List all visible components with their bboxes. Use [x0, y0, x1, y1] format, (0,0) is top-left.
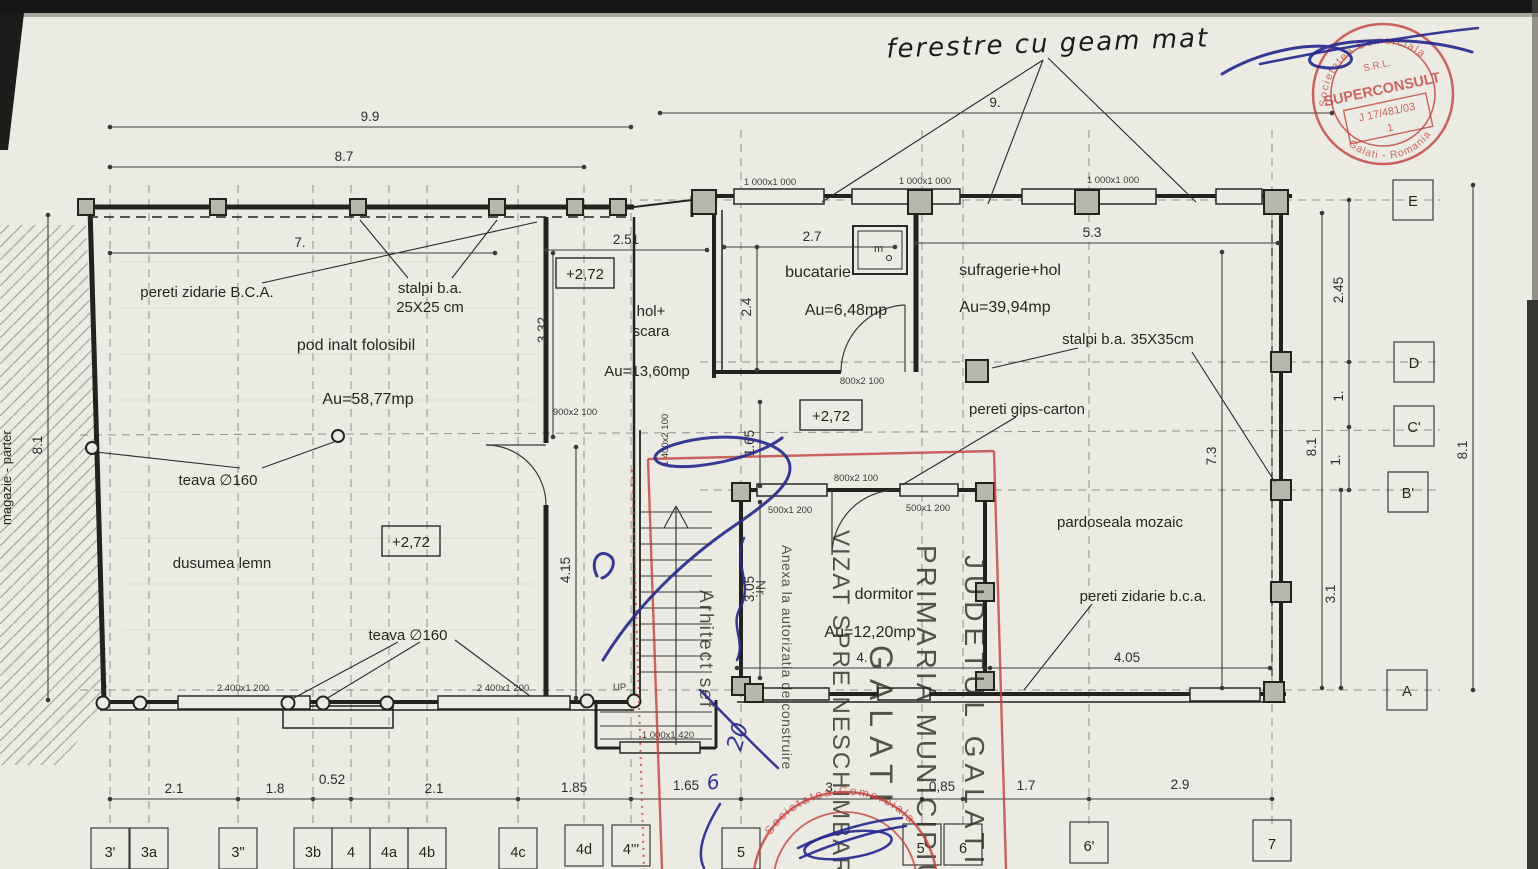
grid-col-7: 4c [510, 845, 525, 861]
grid-col-9: 4''' [623, 842, 640, 858]
dim-245: 2.45 [1331, 277, 1346, 303]
grid-col-3: 3b [305, 845, 321, 861]
dim-31: 3.1 [1323, 585, 1338, 604]
stamp-cityhall-line3: GALATI [863, 645, 899, 810]
grid-row-D: D [1409, 356, 1419, 372]
opening-window-bedroom-2: 500x1 200 [906, 503, 950, 514]
stamp-cityhall-line5: Anexa la autorizatia de construire [779, 545, 795, 770]
material-floor-mosaic: pardoseala mozaic [1057, 514, 1183, 531]
dim-1b: 1. [1328, 454, 1343, 465]
dim-top-3: 7. [294, 235, 305, 250]
room-kitchen-name: bucatarie [785, 264, 851, 281]
opening-window-bedroom-1: 500x1 200 [768, 505, 812, 516]
room-pod-area: Au=58,77mp [322, 391, 413, 408]
grid-col-2: 3" [231, 845, 244, 861]
paper-background [0, 0, 1538, 869]
material-walls-lower: pereti zidarie b.c.a. [1080, 588, 1207, 605]
dim-top-5: 2.7 [803, 229, 822, 244]
room-bedroom-name: dormitor [855, 586, 914, 603]
room-hol-name2: scara [633, 323, 670, 340]
sink-label: m [874, 243, 883, 255]
opening-window-top-1: 1 000x1 000 [744, 177, 796, 188]
material-columns-large: stalpi b.a. 35X35cm [1062, 331, 1194, 348]
grid-col-0: 3' [105, 845, 116, 861]
room-living-area: Au=39,94mp [959, 299, 1050, 316]
grid-col-6: 4b [419, 845, 435, 861]
opening-window-stair: 1 000x1 420 [642, 730, 694, 741]
dim-b9: 2.9 [1171, 777, 1190, 792]
dim-332: 3.32 [535, 317, 550, 343]
stamp-cityhall-line4: VIZAT SPRE NESCHIMBARE [827, 530, 854, 869]
stamp-cityhall-line6: Nr. [753, 580, 769, 598]
level-pod: +2,72 [392, 534, 430, 551]
opening-window-top-2: 1 000x1 000 [899, 176, 951, 187]
dim-top-2: 9. [989, 95, 1000, 110]
level-lower-hol: +2,72 [812, 408, 850, 425]
pipe-label-upper: teava ∅160 [179, 472, 258, 489]
dim-left-81: 8.1 [30, 436, 45, 455]
stair-up-label: UP [613, 682, 626, 693]
dim-top-1: 8.7 [335, 149, 354, 164]
opening-door-hol: 900x2 100 [553, 407, 597, 418]
material-columns-small-1: stalpi b.a. [398, 280, 462, 297]
room-hol-area: Au=13,60mp [604, 363, 689, 380]
dim-81-mid: 8.1 [1304, 438, 1319, 457]
room-living-name: sufragerie+hol [959, 262, 1061, 279]
material-floor-wood: dusumea lemn [173, 555, 271, 572]
dim-73: 7.3 [1204, 447, 1219, 466]
dim-405: 4.05 [1114, 650, 1140, 665]
dim-top-6: 5.3 [1083, 225, 1102, 240]
pipe-label-lower: teava ∅160 [369, 627, 448, 644]
grid-col-5: 4a [381, 845, 398, 861]
dim-81-right: 8.1 [1455, 441, 1470, 460]
opening-window-big-1: 2 400x1 200 [217, 683, 269, 694]
grid-row-A: A [1402, 684, 1412, 700]
opening-window-top-3: 1 000x1 000 [1087, 175, 1139, 186]
opening-door-bedroom: 800x2 100 [834, 473, 878, 484]
opening-door-kitchen: 800x2 100 [840, 376, 884, 387]
dim-b1: 1.8 [266, 781, 285, 796]
dim-b8: 1.7 [1017, 778, 1036, 793]
grid-col-14: 7 [1268, 837, 1276, 853]
dim-1a: 1. [1331, 390, 1346, 401]
stamp-cityhall-line1: JUDETUL GALATI [959, 555, 990, 869]
stamp-cityhall-signature: Arhitect sef [695, 590, 716, 709]
grid-col-13: 6' [1084, 839, 1095, 855]
grid-row-C: C' [1407, 420, 1420, 436]
grid-col-4: 4 [347, 845, 355, 861]
dim-b4: 1.85 [561, 780, 587, 795]
grid-col-8: 4d [576, 842, 592, 858]
grid-col-1: 3a [141, 845, 158, 861]
floor-plan-drawing: magazie - parter [0, 0, 1538, 869]
adjacent-building-label: magazie - parter [0, 430, 14, 525]
level-hol: +2,72 [566, 266, 604, 283]
room-kitchen-area: Au=6,48mp [805, 302, 887, 319]
opening-window-big-2: 2 400x1 200 [477, 683, 529, 694]
grid-row-E: E [1408, 194, 1418, 210]
dim-b5: 1.65 [673, 778, 699, 793]
dim-24: 2.4 [739, 297, 754, 316]
stamp-cityhall-line2: PRIMARIA MUNICIPIULUI [911, 545, 942, 869]
grid-row-B: B' [1402, 486, 1415, 502]
dim-b0: 2.1 [165, 781, 184, 796]
dim-top-4: 2.51 [613, 232, 639, 247]
material-columns-small-2: 25X25 cm [396, 299, 464, 316]
dim-415: 4.15 [558, 557, 573, 583]
dim-b3: 2.1 [425, 781, 444, 796]
grid-col-10: 5 [737, 845, 745, 861]
scanned-floor-plan: magazie - parter [0, 0, 1538, 869]
room-pod-name: pod inalt folosibil [297, 337, 415, 354]
room-hol-name1: hol+ [637, 303, 666, 320]
material-drywall: pereti gips-carton [969, 401, 1085, 418]
dim-top-0: 9.9 [361, 109, 380, 124]
material-walls-bca: pereti zidarie B.C.A. [140, 284, 273, 301]
dim-b2: 0.52 [319, 772, 345, 787]
